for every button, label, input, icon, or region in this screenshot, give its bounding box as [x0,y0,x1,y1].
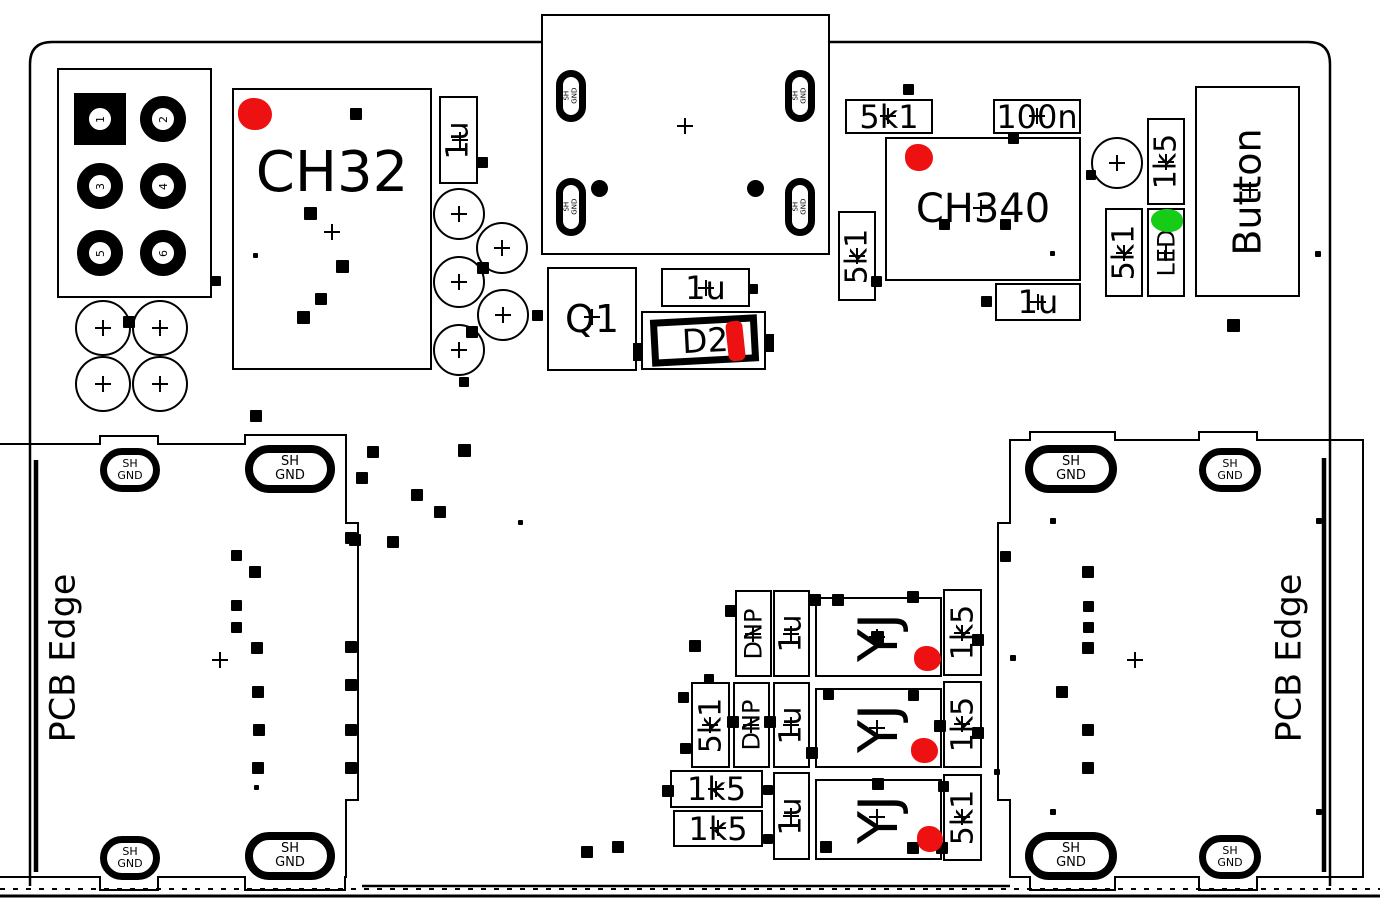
via-dot[interactable] [477,262,489,274]
via-dot[interactable] [689,640,701,652]
pcb-layout-canvas: CH32 Q1 D2 CH340 Button PCB Edge PCB Edg… [0,0,1380,909]
usb-shield-pad[interactable]: SH GND [556,178,586,236]
crosshair-marker [451,342,467,358]
shield-pad-sh-gnd[interactable]: SHGND [245,445,335,493]
via-dot[interactable] [1316,518,1322,524]
via-dot[interactable] [1050,251,1055,256]
red-highlight-blob [917,826,943,852]
via-dot[interactable] [1000,551,1011,562]
via-dot[interactable] [345,641,357,653]
crosshair-marker [1127,652,1143,668]
header-pin-number: 1 [94,116,107,123]
usb-shield-pad-text: SH GND [792,196,807,218]
crosshair-marker [584,309,600,325]
crosshair-marker [1116,245,1132,261]
via-dot[interactable] [434,506,446,518]
crosshair-marker [1030,294,1046,310]
via-dot[interactable] [249,566,261,578]
crosshair-marker [495,307,511,323]
via-dot[interactable] [871,631,884,644]
via-dot[interactable] [678,692,689,703]
via-dot[interactable] [315,293,327,305]
shield-pad-text: GND [1217,470,1242,482]
crosshair-marker [954,625,970,641]
via-dot[interactable] [581,846,593,858]
pcb-edge-label-right: PCB Edge [1266,550,1312,765]
crosshair-marker [710,820,726,836]
shield-pad-sh-gnd[interactable]: SHGND [1199,835,1261,879]
via-dot[interactable] [903,84,914,95]
header-pin-number: 4 [157,183,170,190]
via-dot[interactable] [662,785,674,797]
via-dot[interactable] [725,605,737,617]
via-dot[interactable] [253,253,258,258]
crosshair-marker [783,808,799,824]
via-dot[interactable] [972,634,984,646]
usb-shield-pad[interactable]: SH GND [785,178,815,236]
via-dot[interactable] [806,747,818,759]
via-dot[interactable] [411,489,423,501]
via-dot[interactable] [908,690,919,701]
via-dot[interactable] [367,446,379,458]
via-dot[interactable] [938,781,949,792]
via-dot[interactable] [252,686,264,698]
crosshair-marker [95,376,111,392]
via-dot[interactable] [231,600,242,611]
header-pin-number: 3 [94,183,107,190]
crosshair-marker [1242,182,1258,198]
via-dot[interactable] [591,180,608,197]
shield-pad-text: SH [281,842,299,856]
via-dot[interactable] [764,716,776,728]
shield-pad-text: GND [117,858,142,870]
via-dot[interactable] [907,591,919,603]
via-dot[interactable] [231,622,242,633]
via-dot[interactable] [356,472,368,484]
via-dot[interactable] [1082,762,1094,774]
via-dot[interactable] [387,536,399,548]
crosshair-marker [973,200,989,216]
crosshair-marker [1158,245,1174,261]
shield-pad-text: GND [117,470,142,482]
crosshair-marker [452,132,468,148]
header-pin-pad-4[interactable]: 4 [140,163,186,209]
header-pin-pad-1[interactable]: 1 [77,96,123,142]
via-dot[interactable] [1086,170,1096,180]
usb-shield-pad-text: SH GND [563,85,578,107]
crosshair-marker [1029,108,1045,124]
crosshair-marker [212,652,228,668]
via-dot[interactable] [350,108,362,120]
via-dot[interactable] [972,727,984,739]
header-pin-number: 2 [157,116,170,123]
via-dot[interactable] [532,310,543,321]
via-dot[interactable] [763,834,773,844]
shield-pad-text: GND [1056,856,1086,870]
via-dot[interactable] [297,311,310,324]
via-dot[interactable] [1082,566,1094,578]
via-dot[interactable] [1000,219,1011,230]
via-dot[interactable] [1082,642,1094,654]
component-ch32-label: CH32 [256,140,408,205]
red-highlight-blob [914,646,941,671]
shield-pad-text: SH [281,455,299,469]
via-dot[interactable] [612,841,624,853]
via-dot[interactable] [466,326,478,338]
crosshair-marker [743,717,759,733]
crosshair-marker [869,809,885,825]
crosshair-marker [677,118,693,134]
shield-pad-text: GND [1217,857,1242,869]
via-dot[interactable] [345,532,357,544]
via-dot[interactable] [1315,251,1321,257]
via-dot[interactable] [809,594,821,606]
via-dot[interactable] [459,377,469,387]
via-dot[interactable] [1316,809,1322,815]
usb-shield-pad-text: SH GND [563,196,578,218]
header-pin-pad-6[interactable]: 6 [140,230,186,276]
crosshair-marker [954,716,970,732]
via-dot[interactable] [1083,622,1094,633]
via-dot[interactable] [304,207,317,220]
shield-pad-text: SH [1062,842,1080,856]
via-dot[interactable] [251,642,263,654]
crosshair-marker [849,248,865,264]
via-dot[interactable] [820,841,832,853]
shield-pad-text: GND [1056,469,1086,483]
crosshair-marker [152,376,168,392]
via-dot[interactable] [939,219,950,230]
crosshair-marker [954,809,970,825]
crosshair-marker [451,206,467,222]
via-dot[interactable] [763,785,773,795]
d2-pad-right [764,334,774,352]
crosshair-marker [1109,155,1125,171]
header-pin-number: 6 [157,250,170,257]
shield-pad-sh-gnd[interactable]: SHGND [1025,832,1117,880]
crosshair-marker [1158,154,1174,170]
via-dot[interactable] [123,316,135,328]
shield-pad-sh-gnd[interactable]: SHGND [1199,448,1261,492]
usb-shield-pad-text: SH GND [792,85,807,107]
via-dot[interactable] [934,720,946,732]
via-dot[interactable] [1050,809,1056,815]
crosshair-marker [451,274,467,290]
via-dot[interactable] [680,743,691,754]
crosshair-marker [494,240,510,256]
via-dot[interactable] [1008,133,1019,144]
via-dot[interactable] [250,410,262,422]
via-dot[interactable] [727,716,739,728]
shield-pad-text: SH [1062,455,1080,469]
via-dot[interactable] [336,260,349,273]
via-dot[interactable] [345,724,357,736]
via-dot[interactable] [704,674,714,684]
crosshair-marker [708,781,724,797]
usb-shield-pad[interactable]: SH GND [556,70,586,122]
crosshair-marker [745,626,761,642]
crosshair-marker [152,320,168,336]
crosshair-marker [783,717,799,733]
green-led-blob [1151,209,1183,232]
via-dot[interactable] [748,284,758,294]
crosshair-marker [702,717,718,733]
crosshair-marker [783,626,799,642]
via-dot[interactable] [1056,686,1068,698]
d2-pad-left [633,343,643,361]
via-dot[interactable] [477,157,488,168]
via-dot[interactable] [345,762,357,774]
shield-pad-sh-gnd[interactable]: SHGND [1025,445,1117,493]
via-dot[interactable] [823,689,834,700]
crosshair-marker [698,280,714,296]
via-dot[interactable] [1082,724,1094,736]
shield-pad-sh-gnd[interactable]: SHGND [245,832,335,880]
shield-pad-text: GND [275,469,305,483]
pcb-edge-label-left: PCB Edge [40,550,86,765]
via-dot[interactable] [1227,319,1240,332]
header-pin-number: 5 [94,250,107,257]
via-dot[interactable] [254,785,259,790]
crosshair-marker [324,224,340,240]
via-dot[interactable] [518,520,523,525]
via-dot[interactable] [994,769,1000,775]
red-highlight-blob [911,738,938,763]
via-dot[interactable] [981,296,992,307]
usb-shield-pad[interactable]: SH GND [785,70,815,122]
header-pin-pad-3[interactable]: 3 [77,163,123,209]
component-d2-label: D2 [681,320,729,361]
shield-pad-sh-gnd[interactable]: SHGND [100,448,160,492]
via-dot[interactable] [231,550,242,561]
via-dot[interactable] [871,276,882,287]
via-dot[interactable] [747,180,764,197]
via-dot[interactable] [458,444,471,457]
header-pin-pad-5[interactable]: 5 [77,230,123,276]
via-dot[interactable] [253,724,265,736]
red-highlight-blob [238,98,272,130]
via-dot[interactable] [832,594,844,606]
via-dot[interactable] [252,762,264,774]
via-dot[interactable] [211,276,221,286]
crosshair-marker [869,720,885,736]
red-highlight-blob [905,144,933,171]
via-dot[interactable] [872,778,884,790]
shield-pad-text: GND [275,856,305,870]
shield-pad-sh-gnd[interactable]: SHGND [100,836,160,880]
via-dot[interactable] [1083,601,1094,612]
via-dot[interactable] [1010,655,1016,661]
crosshair-marker [95,320,111,336]
header-pin-pad-2[interactable]: 2 [140,96,186,142]
via-dot[interactable] [1050,518,1056,524]
crosshair-marker [880,108,896,124]
via-dot[interactable] [345,679,357,691]
